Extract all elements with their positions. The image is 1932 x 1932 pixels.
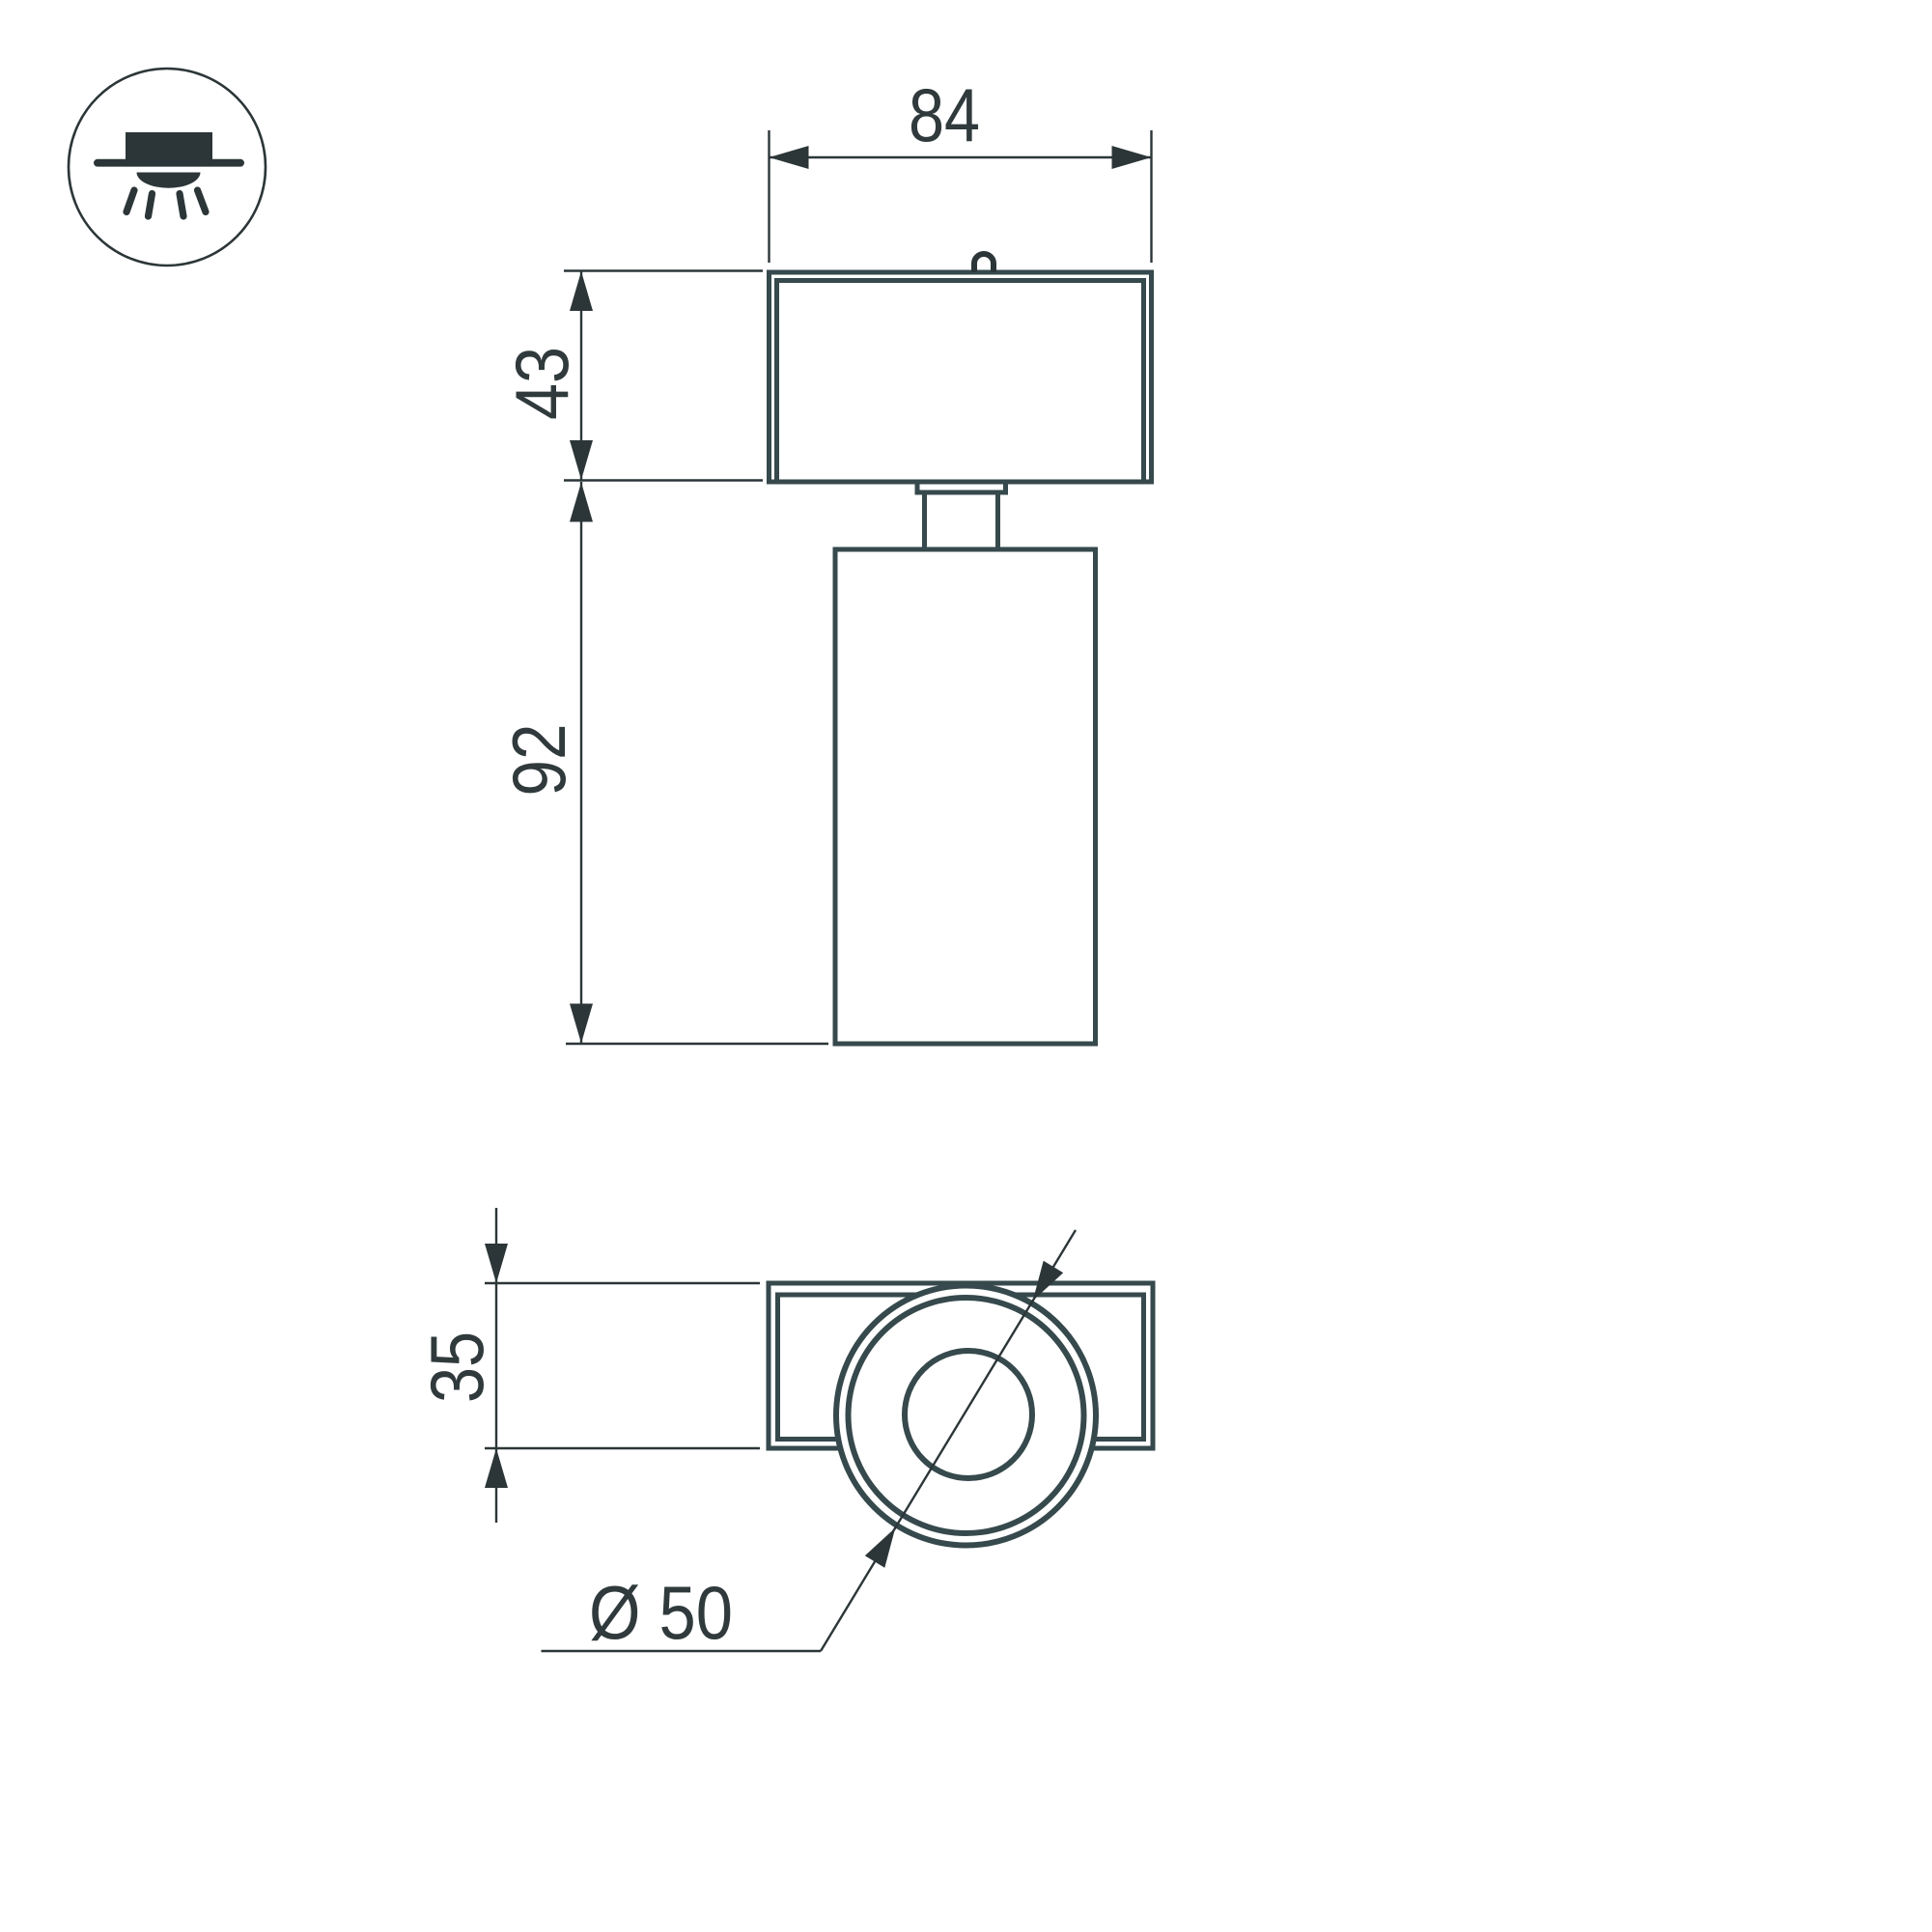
svg-text:92: 92	[496, 724, 581, 797]
svg-text:84: 84	[909, 72, 980, 157]
svg-text:43: 43	[499, 347, 584, 420]
svg-text:35: 35	[414, 1331, 499, 1403]
svg-text:Ø 50: Ø 50	[589, 1570, 733, 1655]
